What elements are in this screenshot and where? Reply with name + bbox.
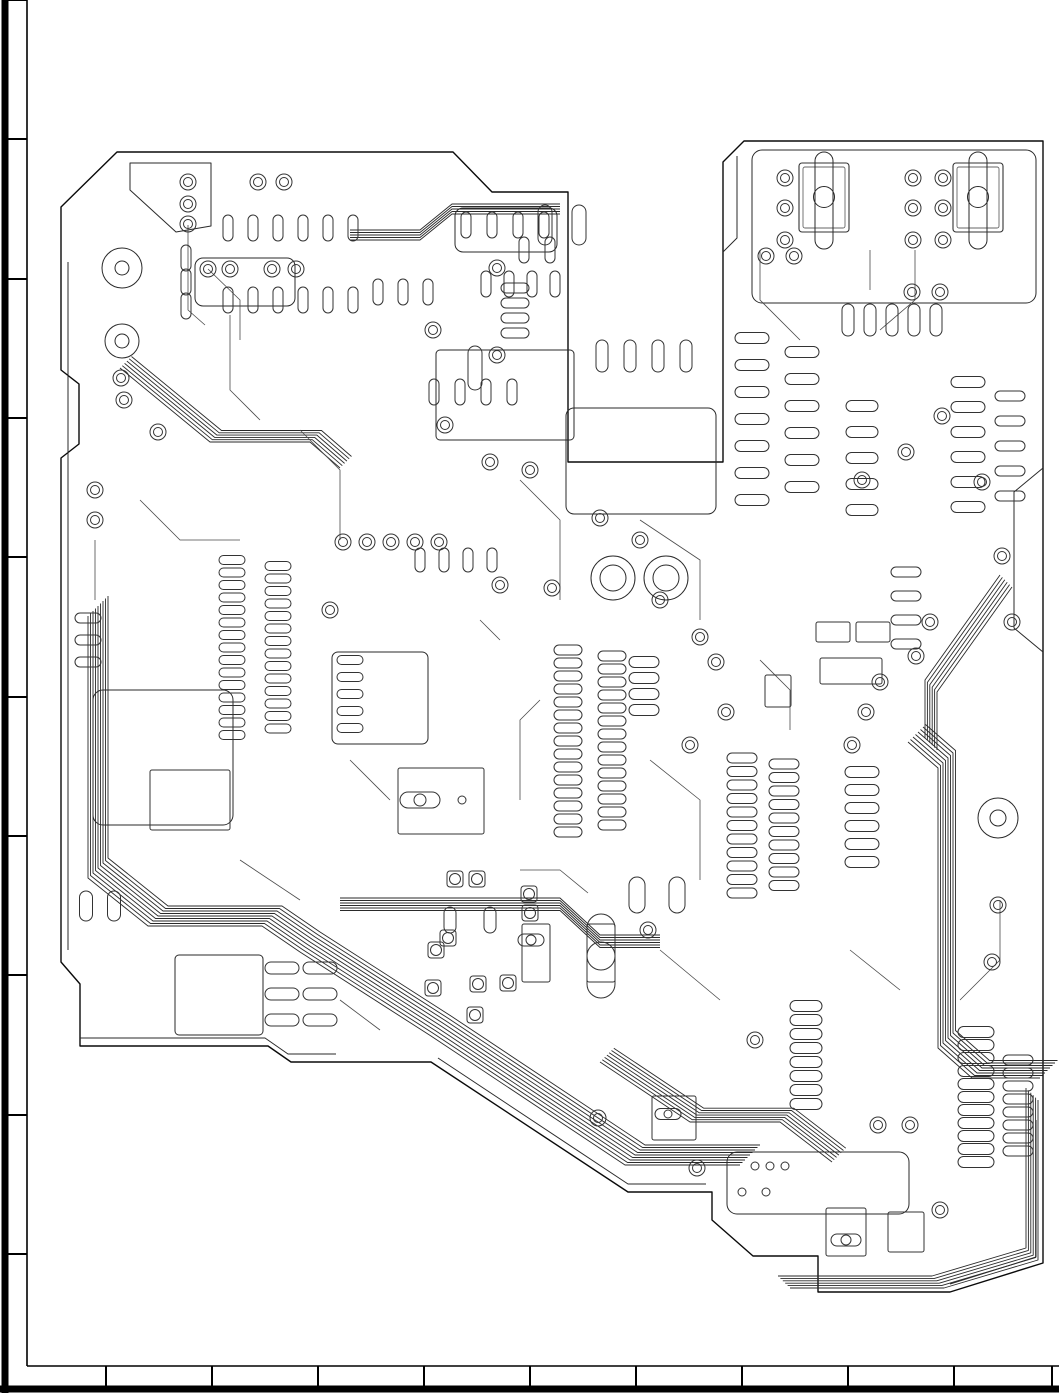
component-outlines: [150, 622, 924, 1256]
pad: [265, 662, 291, 671]
pad: [554, 658, 582, 668]
trace: [340, 1000, 380, 1030]
pad: [550, 271, 560, 297]
pad: [323, 287, 333, 313]
via: [708, 654, 724, 670]
pad-rows: [75, 205, 1033, 1168]
pad: [735, 414, 769, 425]
pad: [995, 491, 1025, 501]
pad: [785, 455, 819, 466]
pad: [727, 767, 757, 777]
pad: [219, 568, 245, 577]
pad: [572, 205, 586, 245]
pad: [181, 269, 191, 295]
mounting-hole: [644, 556, 688, 600]
pad: [373, 279, 383, 305]
pad: [501, 298, 529, 308]
mounting-hole: [978, 798, 1018, 838]
pad: [265, 724, 291, 733]
pad: [219, 693, 245, 702]
pad: [80, 891, 93, 921]
component-outline: [522, 924, 550, 982]
pad: [501, 283, 529, 293]
via: [747, 1032, 763, 1048]
copper-zone: [93, 690, 233, 825]
via: [592, 510, 608, 526]
component-outline: [398, 768, 484, 834]
pad: [554, 788, 582, 798]
pad: [598, 742, 626, 752]
via: [935, 170, 951, 186]
pad: [219, 643, 245, 652]
via: [522, 462, 538, 478]
via: [250, 174, 266, 190]
trace-bundle: [925, 575, 1012, 750]
copper-zones: [93, 150, 1036, 1214]
pad: [769, 867, 799, 877]
pad: [265, 562, 291, 571]
via: [908, 648, 924, 664]
pad: [439, 548, 449, 572]
via: [180, 174, 196, 190]
pad: [930, 304, 942, 336]
square-pad: [467, 1007, 483, 1023]
pad: [598, 690, 626, 700]
pad: [337, 724, 363, 733]
trace: [850, 950, 900, 990]
pad: [265, 962, 299, 974]
via: [854, 472, 870, 488]
pad: [958, 1027, 994, 1038]
pad: [598, 729, 626, 739]
pad: [598, 755, 626, 765]
large-pad: [400, 792, 440, 808]
component-outline: [816, 622, 850, 642]
bundle-trace: [916, 735, 1048, 1071]
pad: [629, 877, 645, 913]
pad: [790, 1085, 822, 1096]
via: [544, 580, 560, 596]
pad-row: [337, 656, 363, 733]
pad: [554, 814, 582, 824]
bundle-trace: [340, 903, 660, 940]
pad: [790, 1043, 822, 1054]
pad: [845, 767, 879, 778]
pad: [598, 820, 626, 830]
pad: [891, 567, 921, 577]
trace: [140, 500, 240, 540]
pad: [598, 794, 626, 804]
pad: [219, 706, 245, 715]
via: [489, 347, 505, 363]
pad: [846, 505, 878, 516]
bundle-trace: [778, 1088, 1026, 1276]
via: [180, 196, 196, 212]
square-pad: [425, 980, 441, 996]
board-outline: [61, 141, 1043, 1292]
via: [905, 170, 921, 186]
connector-block: [799, 152, 849, 249]
via: [437, 417, 453, 433]
pad: [265, 699, 291, 708]
via: [786, 248, 802, 264]
pad: [223, 215, 233, 241]
via: [902, 1117, 918, 1133]
pad: [598, 664, 626, 674]
pad: [624, 340, 636, 372]
pad: [769, 813, 799, 823]
pad-row: [223, 215, 358, 241]
pad: [298, 215, 308, 241]
via: [935, 232, 951, 248]
pad: [303, 988, 337, 1000]
pad: [680, 340, 692, 372]
pad: [951, 502, 985, 513]
pad: [501, 313, 529, 323]
pad: [845, 803, 879, 814]
pad: [539, 212, 549, 238]
pad: [265, 1014, 299, 1026]
pad: [735, 333, 769, 344]
trace: [480, 620, 500, 640]
component-outline: [888, 1212, 924, 1252]
pad: [463, 548, 473, 572]
pad: [790, 1057, 822, 1068]
via: [276, 174, 292, 190]
via: [777, 200, 793, 216]
pad: [298, 287, 308, 313]
pad: [598, 807, 626, 817]
via: [872, 674, 888, 690]
pad: [219, 593, 245, 602]
pad: [790, 1029, 822, 1040]
via: [777, 170, 793, 186]
via: [994, 548, 1010, 564]
bundle-trace: [340, 898, 660, 935]
trace: [350, 760, 390, 800]
pad: [219, 581, 245, 590]
component-outline: [150, 770, 230, 830]
via: [288, 261, 304, 277]
pad: [785, 401, 819, 412]
pour-boundary: [950, 1120, 1036, 1284]
pad-row: [598, 651, 626, 830]
pad: [273, 287, 283, 313]
pad: [219, 556, 245, 565]
pad: [265, 637, 291, 646]
large-pad-body: [831, 1234, 861, 1246]
small-hole: [458, 796, 466, 804]
bundle-trace: [101, 604, 753, 1153]
pad-row: [958, 1027, 994, 1168]
pad: [727, 794, 757, 804]
pad: [845, 821, 879, 832]
pad: [735, 387, 769, 398]
pour-boundary: [1014, 468, 1043, 652]
square-pad: [447, 871, 463, 887]
component-outline: [587, 924, 615, 982]
via: [116, 392, 132, 408]
pad: [348, 287, 358, 313]
pad: [554, 736, 582, 746]
pad: [846, 453, 878, 464]
trace-bundle: [120, 357, 352, 469]
via: [431, 534, 447, 550]
trace-bundle: [88, 596, 760, 1165]
bundle-trace: [930, 580, 1005, 743]
square-pad: [521, 886, 537, 902]
pad: [951, 402, 985, 413]
pad: [669, 877, 685, 913]
pad: [1003, 1081, 1033, 1091]
pcb-drawing-sheet: [0, 0, 1059, 1393]
bundle-trace: [106, 599, 758, 1148]
via: [632, 532, 648, 548]
via: [87, 482, 103, 498]
pad: [303, 1014, 337, 1026]
via: [935, 200, 951, 216]
trace-bundle: [908, 725, 1058, 1079]
via: [682, 737, 698, 753]
pad: [554, 827, 582, 837]
via: [264, 261, 280, 277]
pad-row: [846, 401, 878, 516]
copper-zone: [727, 1152, 909, 1214]
pad: [769, 840, 799, 850]
bundle-trace: [908, 742, 1040, 1078]
pad: [415, 548, 425, 572]
pad-row: [769, 759, 799, 891]
via: [932, 284, 948, 300]
pad: [265, 599, 291, 608]
pad: [265, 612, 291, 621]
bundle-trace: [127, 361, 347, 461]
trace: [520, 870, 588, 893]
connector-block: [953, 152, 1003, 249]
pad: [727, 888, 757, 898]
pad: [652, 340, 664, 372]
pad: [727, 807, 757, 817]
pad: [735, 495, 769, 506]
bundle-trace: [103, 601, 755, 1150]
pad: [864, 304, 876, 336]
pad: [790, 1015, 822, 1026]
pad: [891, 615, 921, 625]
pad: [468, 346, 482, 390]
component-outline: [765, 675, 791, 707]
pcb-layout-canvas: [0, 0, 1059, 1393]
pad: [995, 441, 1025, 451]
pad: [265, 624, 291, 633]
pad-row: [265, 1014, 337, 1026]
pad: [337, 707, 363, 716]
pad-row: [790, 1001, 822, 1110]
square-pad: [522, 905, 538, 921]
bundle-trace: [132, 357, 352, 457]
trace: [520, 700, 540, 800]
pad-row: [265, 988, 337, 1000]
pad: [727, 834, 757, 844]
pad: [629, 705, 659, 716]
pad-row: [501, 283, 529, 338]
pad: [845, 785, 879, 796]
pad: [995, 416, 1025, 426]
pad-row: [468, 346, 482, 390]
via: [335, 534, 351, 550]
pad: [735, 468, 769, 479]
pad-row: [265, 962, 337, 974]
pad: [265, 649, 291, 658]
pad: [519, 237, 529, 263]
pad-row: [415, 548, 497, 572]
pad-row: [373, 279, 433, 305]
small-hole: [762, 1188, 770, 1196]
pad: [337, 656, 363, 665]
pad: [398, 279, 408, 305]
pad: [181, 245, 191, 271]
pad: [598, 768, 626, 778]
pad: [629, 673, 659, 684]
pour-boundary: [723, 156, 737, 252]
trace: [230, 315, 260, 420]
pad: [598, 716, 626, 726]
bundle-trace: [790, 1100, 1038, 1288]
pad: [958, 1144, 994, 1155]
pad-row: [461, 212, 549, 238]
pad: [629, 657, 659, 668]
trace: [660, 950, 720, 1000]
via: [904, 284, 920, 300]
large-pad: [655, 1109, 681, 1120]
pad: [455, 379, 465, 405]
pad: [487, 548, 497, 572]
component-outline: [856, 622, 890, 642]
pad: [727, 848, 757, 858]
pad: [785, 374, 819, 385]
bundle-trace: [913, 737, 1045, 1073]
pad: [219, 656, 245, 665]
pad: [507, 379, 517, 405]
pad: [248, 287, 258, 313]
pad: [1003, 1055, 1033, 1065]
via: [932, 1202, 948, 1218]
pad: [481, 271, 491, 297]
pad-row: [538, 205, 586, 245]
via: [425, 322, 441, 338]
via: [1004, 614, 1020, 630]
pad: [727, 875, 757, 885]
bundle-trace: [108, 596, 760, 1145]
pad: [219, 718, 245, 727]
via: [383, 534, 399, 550]
pour-boundary: [130, 163, 211, 232]
pad: [727, 753, 757, 763]
pad: [735, 360, 769, 371]
pad: [513, 212, 523, 238]
pad: [323, 215, 333, 241]
pad: [958, 1092, 994, 1103]
trace: [650, 760, 700, 880]
pad: [727, 861, 757, 871]
bundle-trace: [96, 609, 748, 1158]
pad-row: [219, 556, 245, 740]
pad: [554, 710, 582, 720]
pad: [219, 606, 245, 615]
pad: [845, 839, 879, 850]
pad: [769, 759, 799, 769]
pad-row: [596, 340, 692, 372]
via: [905, 200, 921, 216]
pad: [785, 428, 819, 439]
pad: [842, 304, 854, 336]
pad-row: [629, 877, 685, 913]
via: [492, 577, 508, 593]
pad-row: [735, 333, 769, 506]
trace: [520, 480, 560, 600]
square-pad: [469, 871, 485, 887]
via: [718, 704, 734, 720]
pad-row: [951, 377, 985, 513]
via: [898, 444, 914, 460]
pad: [219, 668, 245, 677]
bundle-trace: [932, 582, 1007, 745]
pad: [958, 1131, 994, 1142]
via: [844, 737, 860, 753]
pad: [337, 673, 363, 682]
bundle-trace: [340, 908, 660, 945]
pad: [769, 881, 799, 891]
pad: [273, 215, 283, 241]
pad: [846, 427, 878, 438]
pad-row: [265, 562, 291, 734]
small-hole: [751, 1162, 759, 1170]
trace-bundle: [340, 898, 660, 948]
pad: [769, 786, 799, 796]
pad: [265, 687, 291, 696]
pad: [265, 587, 291, 596]
pad: [538, 205, 552, 245]
pad: [554, 775, 582, 785]
pad: [598, 781, 626, 791]
pad: [727, 780, 757, 790]
via: [640, 922, 656, 938]
pad: [995, 466, 1025, 476]
pad: [846, 401, 878, 412]
pad-row: [845, 767, 879, 868]
bundle-trace: [935, 585, 1010, 748]
pad: [423, 279, 433, 305]
trace-bundle: [778, 1088, 1038, 1288]
pad: [219, 731, 245, 740]
pad: [958, 1118, 994, 1129]
pad: [769, 800, 799, 810]
pad: [248, 215, 258, 241]
pad-row: [519, 237, 555, 263]
via: [990, 897, 1006, 913]
pad: [554, 801, 582, 811]
pad: [598, 703, 626, 713]
pad-row: [785, 347, 819, 493]
via: [407, 534, 423, 550]
copper-zone: [752, 150, 1036, 303]
pad: [596, 340, 608, 372]
mounting-hole: [102, 248, 142, 288]
pad: [958, 1157, 994, 1168]
pad: [337, 690, 363, 699]
trace: [960, 900, 1000, 1000]
via: [322, 602, 338, 618]
pad: [554, 645, 582, 655]
